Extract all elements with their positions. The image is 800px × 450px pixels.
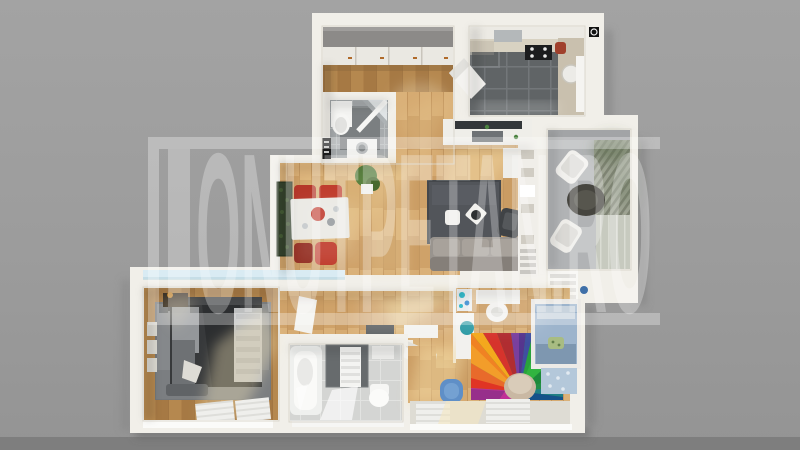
- svg-text:ONUTPETAN.RO: ONUTPETAN.RO: [196, 107, 652, 361]
